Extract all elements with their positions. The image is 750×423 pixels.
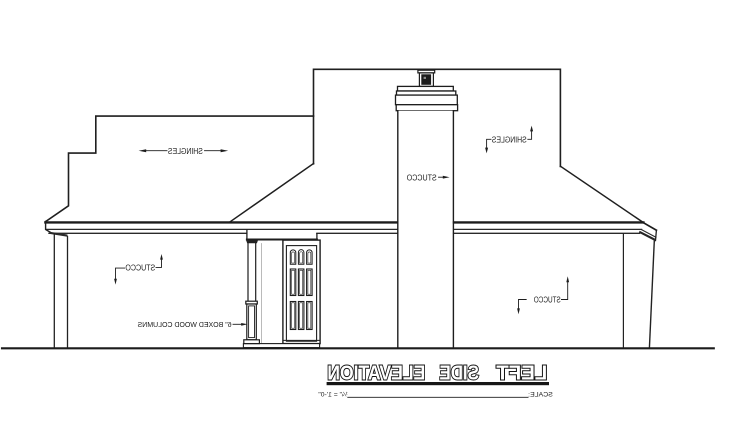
svg-text:STUCCO: STUCCO	[534, 296, 561, 305]
svg-text:¼" = 1'-0": ¼" = 1'-0"	[318, 391, 348, 398]
svg-text:LEFT: LEFT	[496, 362, 547, 384]
svg-text:SHINGLES: SHINGLES	[167, 147, 202, 156]
svg-text:SHINGLES: SHINGLES	[491, 135, 526, 144]
svg-text:6" BOXED WOOD COLUMNS: 6" BOXED WOOD COLUMNS	[138, 320, 232, 329]
svg-text:SIDE: SIDE	[439, 362, 479, 384]
svg-text:STUCCO: STUCCO	[407, 173, 437, 182]
svg-text:ELEVATION: ELEVATION	[327, 362, 425, 384]
svg-text:STUCCO: STUCCO	[125, 264, 155, 273]
svg-text:SCALE:: SCALE:	[528, 391, 553, 398]
